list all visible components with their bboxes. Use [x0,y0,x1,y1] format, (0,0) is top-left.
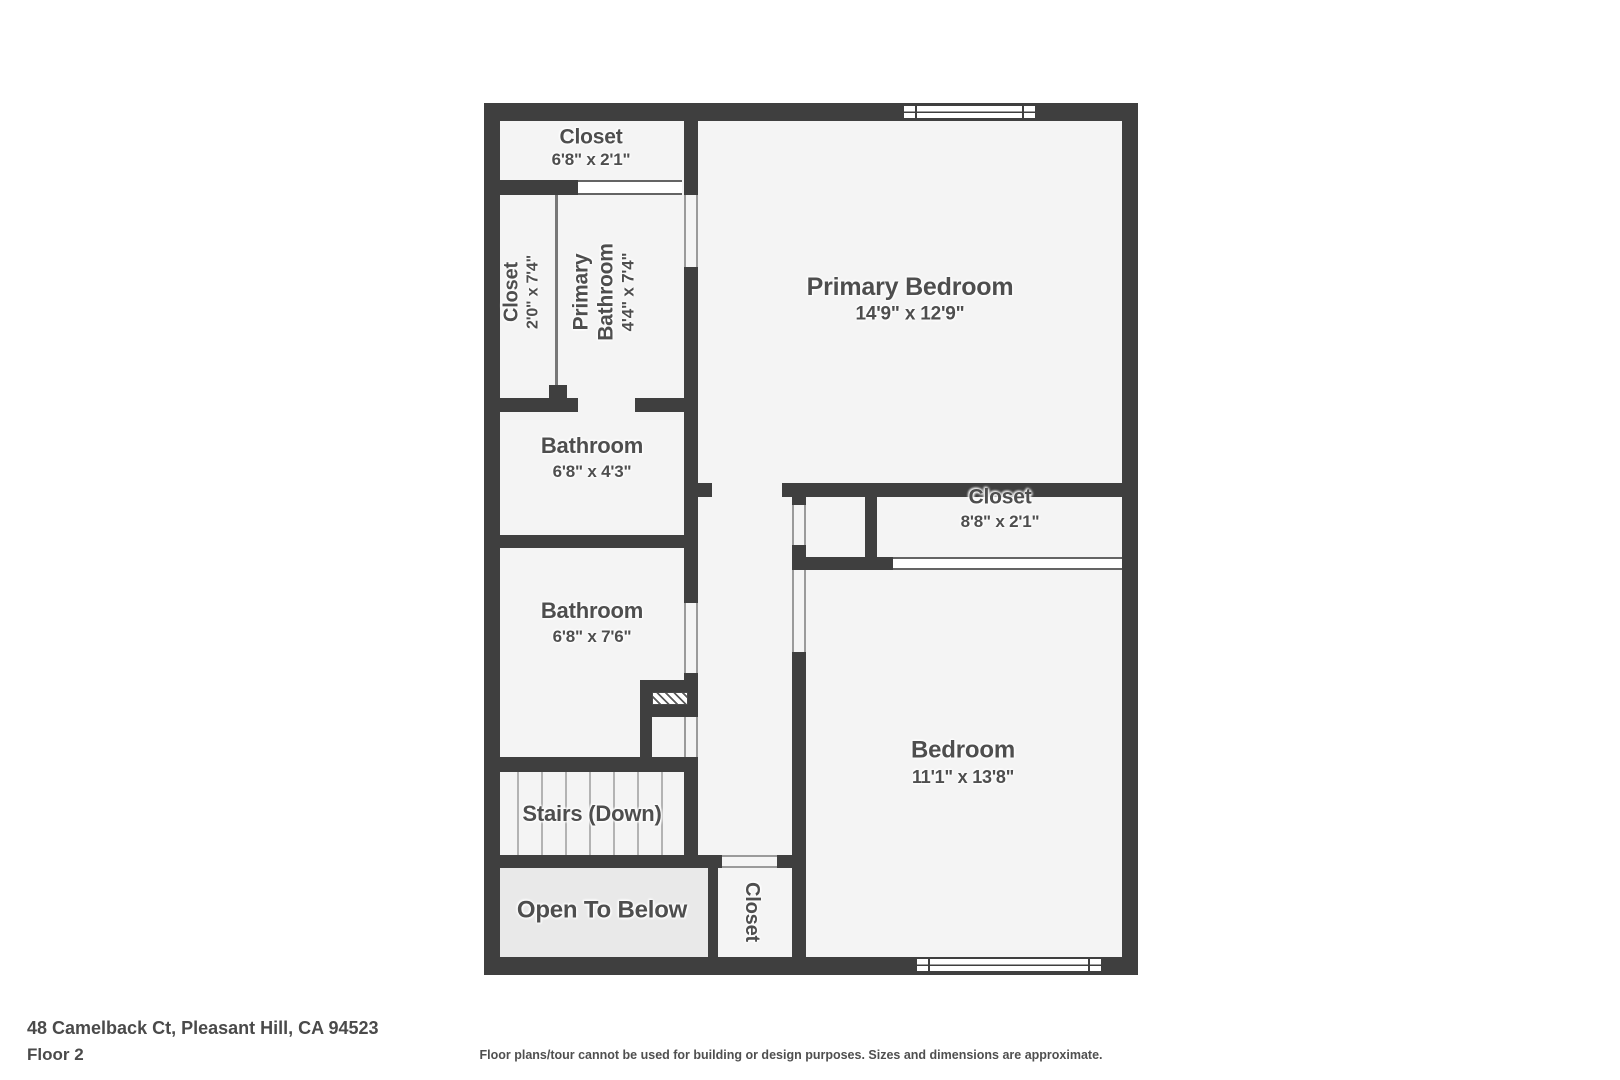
wall-outer-top [484,103,1138,121]
room-label-closet-bottom: Closet [740,882,764,942]
sliding-door-opening [578,180,682,195]
room-label-closet-top: Closet [560,124,623,149]
wall-segment [635,398,684,412]
wall-outer-left [484,103,500,975]
room-dims-bedroom: 11'1" x 13'8" [912,767,1014,789]
door-opening [804,570,806,652]
wall-segment [684,121,698,195]
wall-segment [500,757,684,772]
door-opening [792,505,794,545]
room-dims: 4'4" x 7'4" [619,232,639,352]
door-opening [684,603,686,673]
room-label-primary-bathroom: Primary Bathroom 4'4" x 7'4" [569,232,640,352]
room-dims-bathroom-large: 6'8" x 7'6" [553,627,632,647]
wall-segment [865,497,877,557]
wall-segment [500,180,578,195]
door-opening [696,717,698,757]
room-dims-primary-bedroom: 14'9" x 12'9" [856,304,965,327]
window-symbol [915,957,1103,973]
room-dims-closet-right: 8'8" x 2'1" [961,512,1040,532]
door-opening [684,195,686,267]
vent-chase-hatch [652,692,688,705]
wall-segment [684,483,712,497]
stair-tread-line [517,772,519,855]
wall-segment [640,680,652,772]
wall-segment [792,557,893,570]
closet-divider-line [555,195,558,391]
room-label-stairs: Stairs (Down) [522,801,661,827]
room-label-closet-left: Closet 2'0" x 7'4" [499,255,542,329]
wall-outer-right [1122,103,1138,975]
floor-plan-page: Closet 6'8" x 2'1" Closet 2'0" x 7'4" Pr… [0,0,1620,1080]
wall-segment [640,704,698,717]
room-label-closet-right: Closet [969,484,1032,509]
room-dims-bathroom-small: 6'8" x 4'3" [553,462,632,482]
property-address: 48 Camelback Ct, Pleasant Hill, CA 94523 [27,1018,379,1039]
room-label-bathroom-large: Bathroom [541,598,643,624]
room-label-bedroom: Bedroom [911,737,1015,766]
door-opening [684,717,686,757]
wall-segment [549,385,567,412]
wall-segment [484,855,722,868]
room-name: Primary Bathroom [569,232,619,352]
door-opening [696,603,698,673]
room-dims: 2'0" x 7'4" [523,255,542,329]
window-symbol [902,104,1037,120]
floor-number: Floor 2 [27,1045,84,1065]
wall-segment [640,680,698,692]
disclaimer-text: Floor plans/tour cannot be used for buil… [479,1048,1102,1062]
door-opening [722,866,777,868]
wall-segment [792,652,806,957]
wall-segment [500,535,684,548]
room-label-primary-bedroom: Primary Bedroom [807,272,1014,302]
wall-segment [782,483,1122,497]
room-label-open-to-below: Open To Below [517,897,687,926]
room-label-bathroom-small: Bathroom [541,433,643,459]
wall-segment [684,757,698,855]
room-name: Closet [499,255,523,329]
door-opening [722,855,777,857]
wall-segment [684,267,698,603]
wall-segment [708,868,718,957]
door-opening [696,195,698,267]
room-dims-closet-top: 6'8" x 2'1" [552,150,631,170]
door-opening [804,505,806,545]
wall-segment [792,483,806,505]
door-opening [792,570,794,652]
sliding-door-opening [893,557,1122,570]
